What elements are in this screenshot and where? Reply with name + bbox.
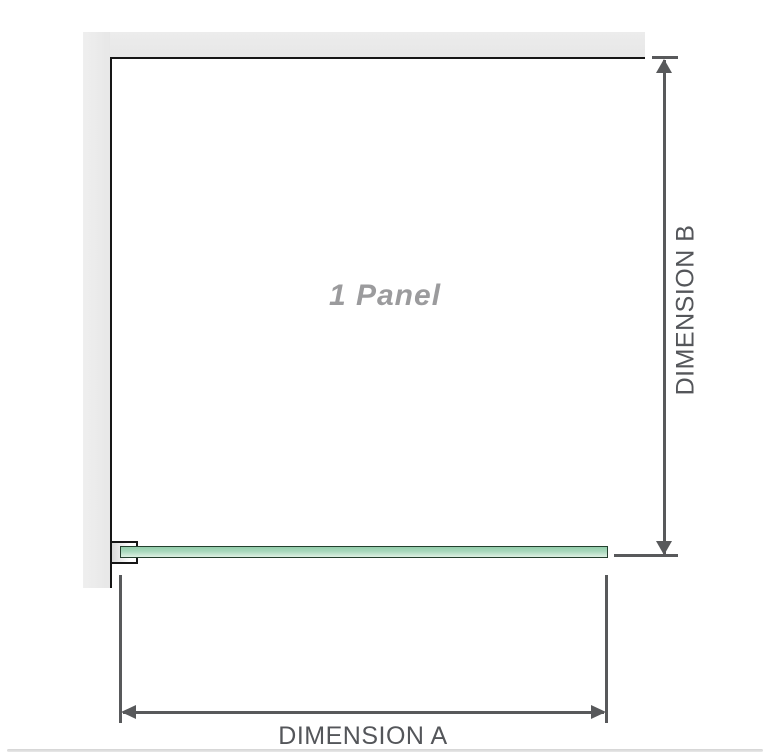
panel-top-edge-line — [110, 57, 645, 59]
panel-count-label: 1 Panel — [329, 281, 441, 311]
arrow-right-icon — [591, 705, 606, 719]
wall-left — [83, 32, 110, 588]
dimension-a-right-extension-line — [605, 575, 608, 723]
glass-panel-plan — [120, 546, 608, 558]
dimension-a-label: DIMENSION A — [278, 722, 447, 751]
arrow-up-icon — [656, 59, 672, 73]
arrow-left-icon — [121, 705, 136, 719]
dimension-b-line — [663, 60, 666, 554]
dimension-b-label: DIMENSION B — [672, 225, 701, 396]
wall-top — [83, 32, 645, 58]
baseline-rule — [7, 749, 763, 752]
dimension-a-line — [123, 711, 604, 714]
dimension-a-left-extension-line — [119, 575, 122, 723]
shower-panel-diagram: 1 Panel DIMENSION B DIMENSION A — [0, 0, 771, 755]
panel-left-edge-line — [110, 57, 112, 588]
arrow-down-icon — [656, 541, 672, 555]
